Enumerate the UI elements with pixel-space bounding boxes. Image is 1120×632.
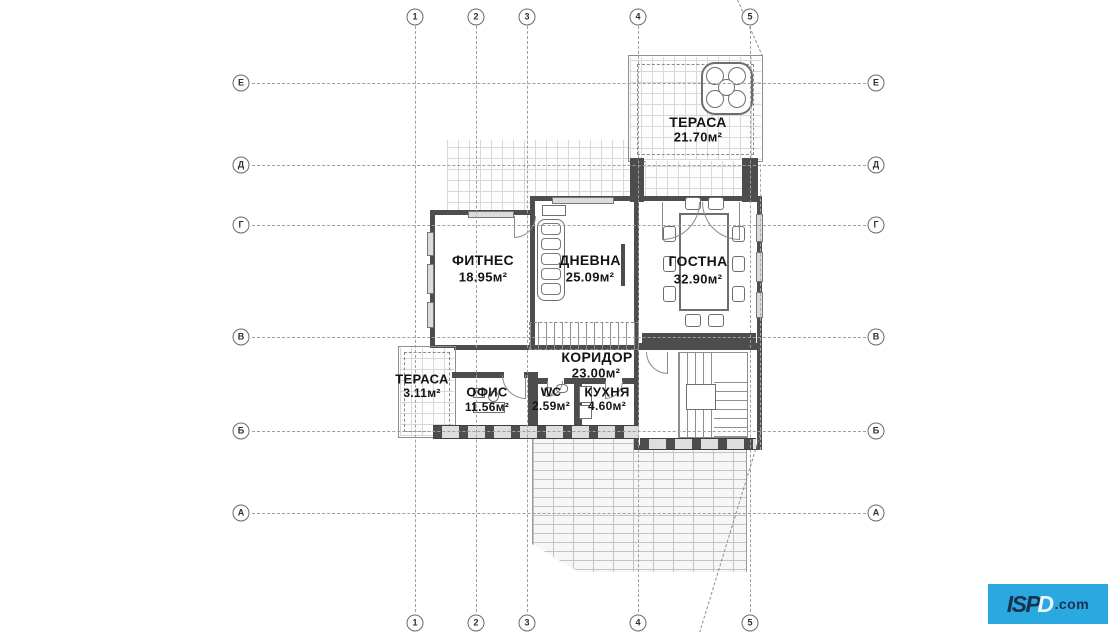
window-fitness-left-2 — [427, 264, 434, 294]
grid-line-col-2 — [476, 26, 477, 612]
grid-marker-col-5-bottom: 5 — [742, 615, 759, 632]
dining-chair — [732, 286, 745, 302]
label-wc-area: 2.59м² — [532, 399, 570, 413]
label-fitness-area: 18.95м² — [459, 270, 508, 285]
sofa-cushion — [541, 268, 561, 280]
dining-chair — [732, 256, 745, 272]
grid-marker-col-1-top: 1 — [407, 9, 424, 26]
label-terrace-left-name: ТЕРАСА — [395, 372, 448, 387]
grid-marker-row-e-left: Е — [233, 75, 250, 92]
label-dnevna-area: 25.09м² — [566, 270, 615, 285]
grid-marker-row-g-right: Г — [868, 217, 885, 234]
grid-line-col-4 — [638, 26, 639, 612]
label-gostna-name: ГОСТНА — [669, 253, 728, 269]
window-band-south — [433, 425, 639, 439]
stairs-main-right-flight — [714, 380, 747, 437]
grid-line-row-b — [252, 431, 866, 432]
logo-suffix-text: .com — [1055, 596, 1090, 612]
entry-porch-tiles — [645, 161, 743, 200]
grid-marker-row-a-right: А — [868, 505, 885, 522]
grid-marker-col-2-top: 2 — [468, 9, 485, 26]
grid-line-row-v — [252, 337, 866, 338]
grid-line-row-a — [252, 513, 866, 514]
grid-line-row-e — [252, 83, 866, 84]
grid-marker-col-4-top: 4 — [630, 9, 647, 26]
label-dnevna-name: ДНЕВНА — [559, 252, 621, 268]
lower-patio-bricks — [532, 430, 747, 580]
logo-brand-text: ISP — [1007, 591, 1040, 618]
grid-line-col-1 — [415, 26, 416, 612]
label-terrace-top-area: 21.70м² — [674, 130, 723, 145]
hot-tub-center — [718, 79, 735, 96]
sofa-side-table — [542, 205, 566, 216]
window-fitness-left-3 — [427, 302, 434, 328]
label-terrace-left-area: 3.11м² — [403, 386, 440, 400]
sofa-cushion — [541, 283, 561, 295]
logo-brand-d: D — [1037, 591, 1052, 618]
stairs-main-landing — [686, 384, 716, 410]
logo-icon: ISPD.com — [988, 584, 1108, 624]
partition-kitchen-top-2 — [622, 378, 638, 384]
grid-marker-row-g-left: Г — [233, 217, 250, 234]
partition-office-top — [452, 372, 504, 378]
grid-marker-row-v-right: В — [868, 329, 885, 346]
label-koridor-area: 23.00м² — [572, 366, 621, 381]
label-koridor-name: КОРИДОР — [561, 349, 632, 365]
dining-chair — [685, 314, 701, 327]
window-band-stairhall — [640, 438, 756, 450]
grid-marker-row-d-left: Д — [233, 157, 250, 174]
stairs-corridor — [529, 322, 639, 350]
grid-marker-col-2-bottom: 2 — [468, 615, 485, 632]
window-fitness-top — [468, 211, 514, 218]
label-kuhnya-area: 4.60м² — [588, 399, 626, 413]
grid-marker-col-3-top: 3 — [519, 9, 536, 26]
grid-marker-row-b-left: Б — [233, 423, 250, 440]
dining-chair — [708, 314, 724, 327]
grid-marker-row-v-left: В — [233, 329, 250, 346]
grid-line-row-g — [252, 225, 866, 226]
sofa-cushion — [541, 238, 561, 250]
label-ofis-area: 11.56м² — [465, 400, 509, 414]
grid-line-col-3 — [527, 26, 528, 612]
grid-marker-col-3-bottom: 3 — [519, 615, 536, 632]
window-fitness-left-1 — [427, 232, 434, 256]
grid-line-row-d — [252, 165, 866, 166]
grid-marker-row-b-right: Б — [868, 423, 885, 440]
grid-marker-row-e-right: Е — [868, 75, 885, 92]
dining-chair — [663, 286, 676, 302]
grid-marker-row-a-left: А — [233, 505, 250, 522]
label-kuhnya-name: КУХНЯ — [584, 385, 629, 400]
floor-plan-canvas: ТЕРАСА 21.70м² ФИТНЕС 18.95м² ДНЕВНА 25.… — [0, 0, 1120, 632]
tv-icon — [621, 244, 625, 286]
label-wc-name: WC — [541, 385, 562, 399]
roof-overhang-line — [760, 164, 761, 450]
label-ofis-name: ОФИС — [466, 385, 507, 400]
label-gostna-area: 32.90м² — [674, 272, 723, 287]
grid-marker-col-4-bottom: 4 — [630, 615, 647, 632]
grid-marker-col-5-top: 5 — [742, 9, 759, 26]
sofa-cushion — [541, 253, 561, 265]
grid-line-col-5 — [750, 26, 751, 612]
window-dnevna-top — [552, 197, 614, 204]
grid-marker-col-1-bottom: 1 — [407, 615, 424, 632]
grid-marker-row-d-right: Д — [868, 157, 885, 174]
label-fitness-name: ФИТНЕС — [452, 252, 514, 268]
stair-landing-wall — [642, 333, 756, 346]
label-terrace-top-name: ТЕРАСА — [669, 114, 726, 130]
